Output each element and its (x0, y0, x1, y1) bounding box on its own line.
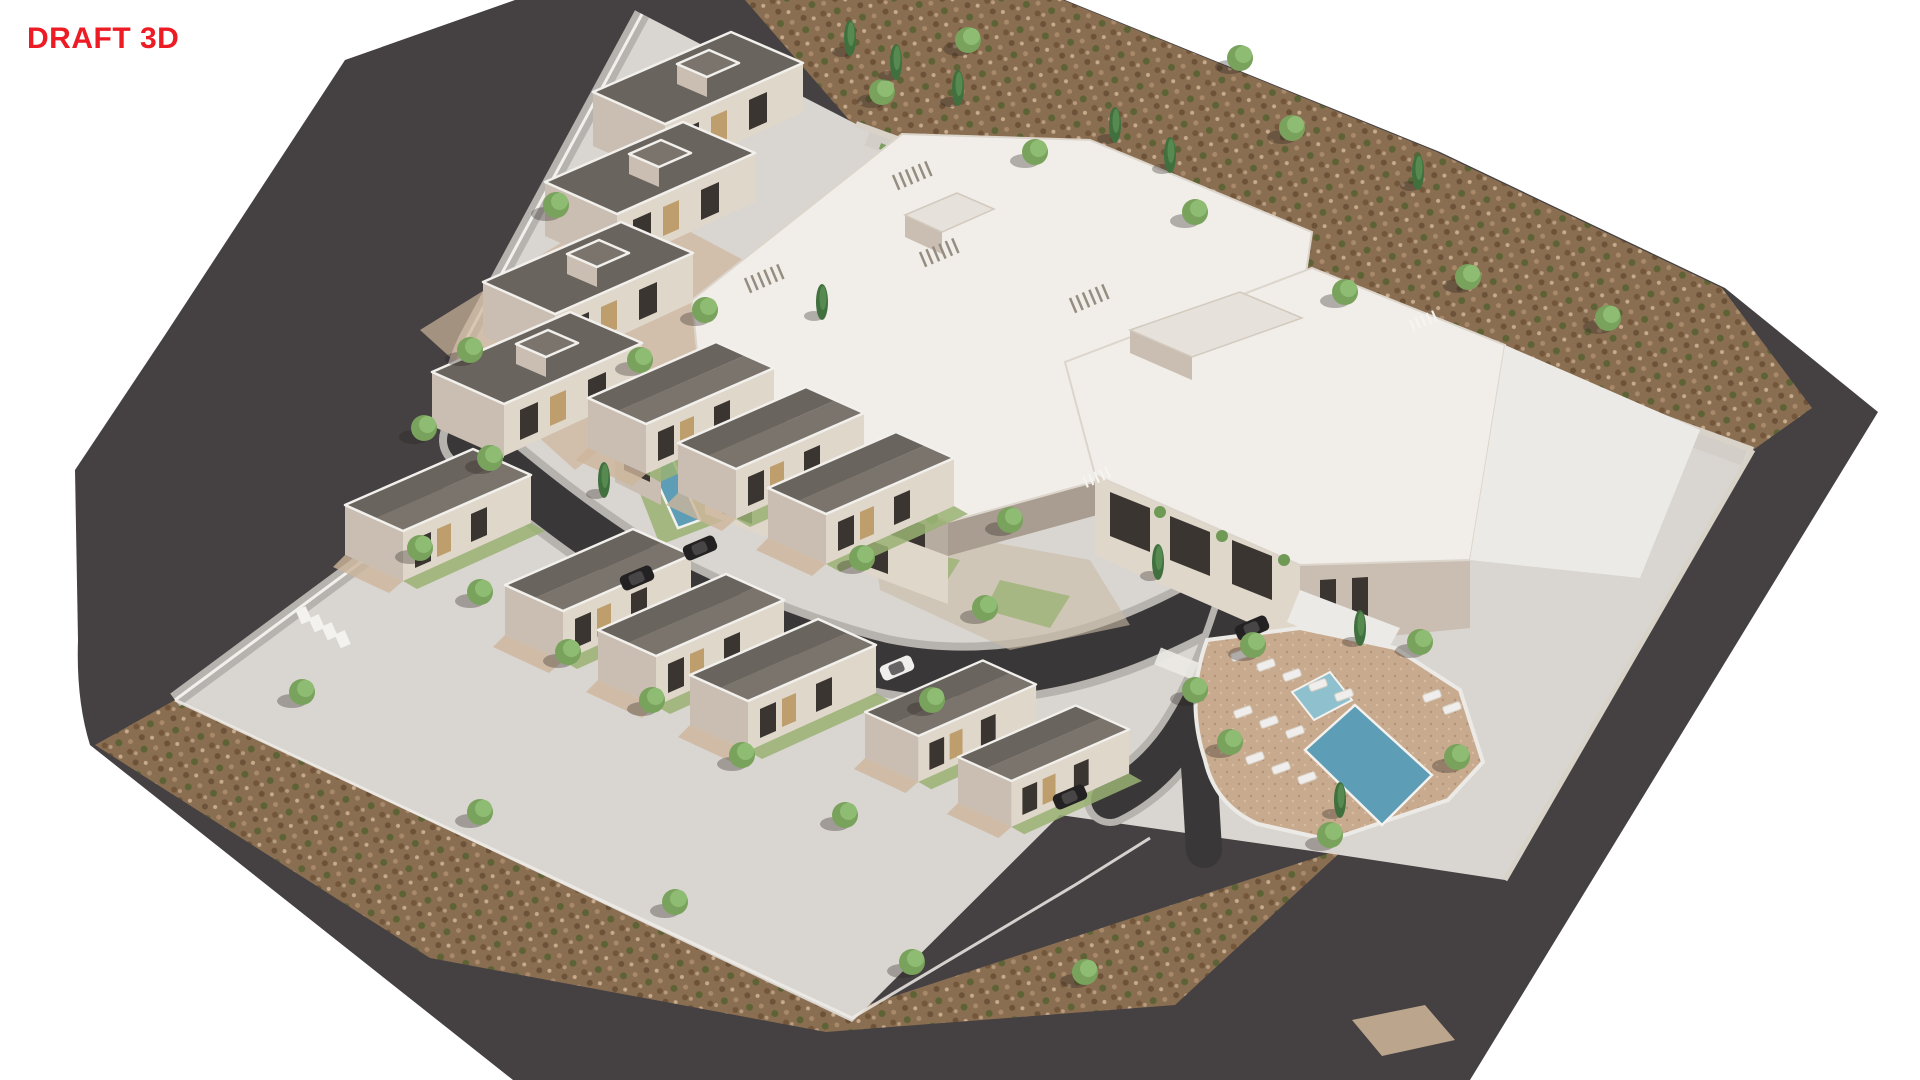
draft-watermark: DRAFT 3D (27, 22, 179, 56)
tree (1215, 45, 1253, 74)
site-plan-render: DRAFT 3D (0, 0, 1920, 1080)
render-canvas (0, 0, 1920, 1080)
